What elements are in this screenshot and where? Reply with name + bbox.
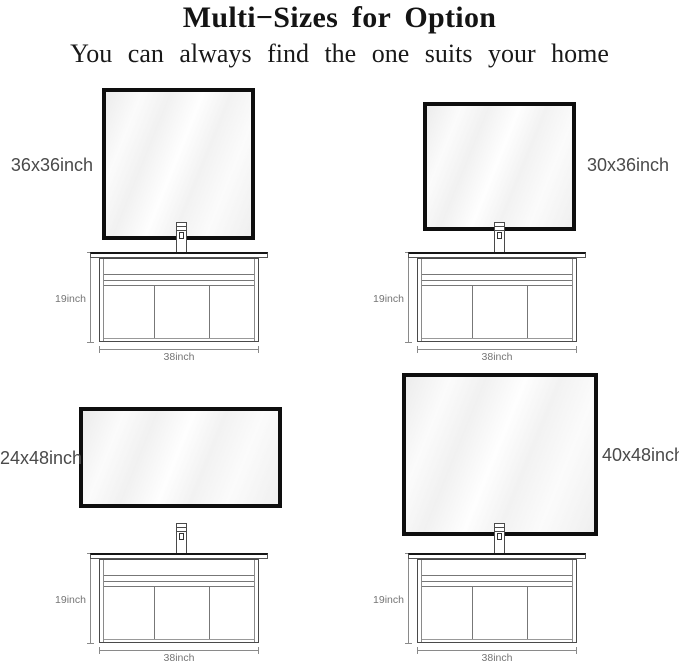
cabinet-base-line (104, 639, 254, 640)
mirror-36x36 (102, 88, 255, 240)
height-dimension-line (408, 252, 409, 343)
mirror-size-label: 30x36inch (587, 155, 669, 176)
vanity-unit: 19inch 38inch (90, 523, 268, 665)
cabinet-base-line (422, 639, 572, 640)
cabinet-height-label: 19inch (368, 293, 404, 305)
cabinet-door-left (423, 587, 472, 639)
countertop (408, 252, 586, 258)
mirror-24x48 (79, 407, 282, 508)
cabinet-door-left (423, 286, 472, 338)
product-sizes-infographic: Multi−Sizes for Option You can always fi… (0, 0, 679, 665)
cabinet-width-label: 38inch (417, 351, 577, 363)
cabinet-width-label: 38inch (99, 652, 259, 664)
door-divider (209, 285, 210, 338)
mirror-30x36 (423, 102, 576, 231)
cabinet-door-left (105, 587, 154, 639)
vanity-cabinet (417, 559, 577, 643)
cabinet-shelf-line (422, 274, 572, 275)
door-divider (527, 285, 528, 338)
door-divider (472, 285, 473, 338)
cabinet-shelf-line (422, 575, 572, 576)
vanity-unit: 19inch 38inch (408, 222, 586, 370)
vanity-cabinet (99, 559, 259, 643)
door-divider (154, 586, 155, 639)
cabinet-door-right (210, 286, 258, 338)
page-title: Multi−Sizes for Option (0, 1, 679, 35)
width-dimension-line (99, 349, 259, 350)
faucet (494, 222, 505, 253)
cabinet-width-label: 38inch (99, 351, 259, 363)
faucet (494, 523, 505, 554)
cabinet-door-left (105, 286, 154, 338)
cabinet-side-rail (418, 259, 422, 341)
faucet (176, 222, 187, 253)
width-dimension-line (99, 650, 259, 651)
door-divider (527, 586, 528, 639)
cabinet-side-rail (100, 560, 104, 642)
cabinet-base-line (104, 338, 254, 339)
door-divider (472, 586, 473, 639)
mirror-size-label: 36x36inch (0, 155, 93, 176)
cabinet-base-line (422, 338, 572, 339)
page-subtitle: You can always find the one suits your h… (0, 39, 679, 69)
cabinet-door-middle (473, 587, 527, 639)
cabinet-height-label: 19inch (50, 594, 86, 606)
cabinet-door-middle (473, 286, 527, 338)
cabinet-door-right (210, 587, 258, 639)
vanity-unit: 19inch 38inch (408, 523, 586, 665)
door-divider (154, 285, 155, 338)
mirror-40x48 (402, 373, 598, 536)
countertop (90, 553, 268, 559)
cabinet-door-middle (155, 587, 209, 639)
countertop (408, 553, 586, 559)
cabinet-shelf-line (104, 575, 254, 576)
cabinet-side-rail (418, 560, 422, 642)
cabinet-shelf-line (104, 274, 254, 275)
vanity-unit: 19inch 38inch (90, 222, 268, 370)
cabinet-door-middle (155, 286, 209, 338)
cabinet-door-right (528, 587, 576, 639)
vanity-cabinet (99, 258, 259, 342)
cabinet-height-label: 19inch (50, 293, 86, 305)
cabinet-height-label: 19inch (368, 594, 404, 606)
door-divider (209, 586, 210, 639)
countertop (90, 252, 268, 258)
faucet (176, 523, 187, 554)
height-dimension-line (90, 252, 91, 343)
cabinet-side-rail (100, 259, 104, 341)
width-dimension-line (417, 349, 577, 350)
vanity-cabinet (417, 258, 577, 342)
height-dimension-line (408, 553, 409, 644)
mirror-size-label: 40x48inch (602, 445, 679, 466)
height-dimension-line (90, 553, 91, 644)
width-dimension-line (417, 650, 577, 651)
cabinet-width-label: 38inch (417, 652, 577, 664)
cabinet-door-right (528, 286, 576, 338)
mirror-size-label: 24x48inch (0, 448, 76, 469)
